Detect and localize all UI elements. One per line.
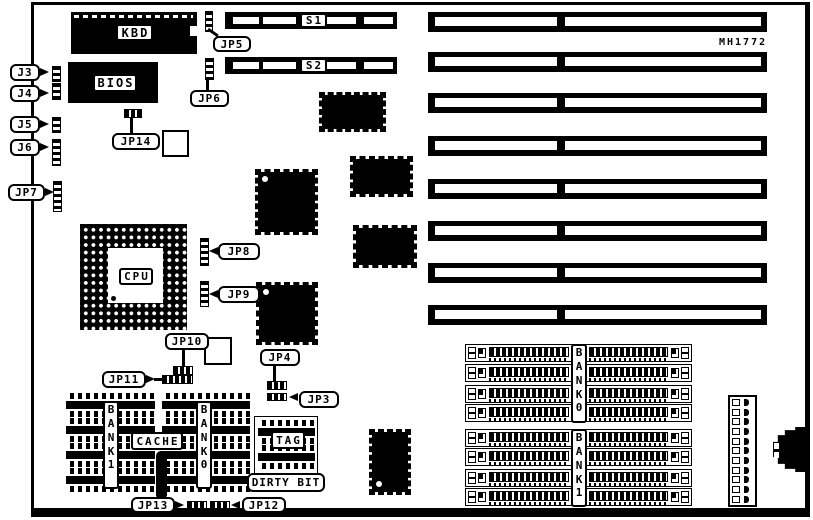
s2-segment (326, 62, 356, 69)
isa-slot (428, 12, 767, 32)
simm-module-chips (589, 407, 668, 417)
simm-latch (468, 388, 476, 400)
callout-jp8: JP8 (218, 243, 260, 260)
isa-slot (428, 93, 767, 113)
power-pin-row (730, 408, 755, 416)
isa-slot-key-16bit (565, 184, 761, 193)
power-pin-socket (732, 486, 740, 493)
callout-jp7: JP7 (8, 184, 45, 201)
j5-connector (52, 117, 61, 133)
callout-jp5: JP5 (213, 36, 251, 52)
callout-jp11: JP11 (102, 371, 146, 388)
qfp-chip (255, 169, 318, 235)
s2-segment (233, 62, 259, 69)
simm-latch (468, 367, 476, 379)
simm-latch (468, 451, 476, 463)
simm-latch (681, 491, 689, 503)
simm-pins (489, 378, 569, 381)
isa-slot-key-16bit (565, 98, 761, 107)
power-pin-row (730, 495, 755, 503)
qfp-chip (256, 282, 318, 345)
simm-latch (468, 407, 476, 419)
isa-slot-key-8bit (435, 17, 557, 26)
pin1-dot (262, 176, 268, 182)
s1-segment (326, 17, 356, 24)
power-pin (744, 409, 749, 416)
simm-module-chips (489, 491, 569, 501)
jp4-jumper (267, 381, 287, 390)
callout-jp4: JP4 (260, 349, 300, 366)
simm-latch (478, 433, 486, 443)
s1-label: S1 (300, 13, 327, 28)
callout-jp3: JP3 (299, 391, 339, 408)
power-pin-socket (732, 457, 740, 464)
isa-slot-key-16bit (565, 57, 761, 66)
callout-pointer (130, 118, 133, 134)
power-pin (744, 399, 749, 406)
simm-latch (478, 473, 486, 483)
power-pin (744, 496, 749, 503)
callout-j4: J4 (10, 85, 40, 102)
power-pin (744, 438, 749, 445)
simm-latch (468, 432, 476, 444)
jp6-header (205, 58, 214, 80)
simm-latch (681, 367, 689, 379)
isa-slot-key-8bit (435, 226, 557, 235)
callout-pointer (182, 350, 185, 366)
isa-slot-key-8bit (435, 141, 557, 150)
s1-segment (263, 17, 296, 24)
pin1-dot (263, 289, 269, 295)
simm-module-chips (489, 347, 569, 357)
simm-latch (681, 388, 689, 400)
power-pin (744, 486, 749, 493)
simm-pins (489, 462, 569, 465)
power-pin-socket (732, 476, 740, 483)
isa-slot-key-16bit (565, 268, 761, 277)
cache-bank1-label: B A N K 1 (103, 401, 119, 489)
simm-latch (681, 407, 689, 419)
power-pin (744, 428, 749, 435)
cache-label: CACHE (131, 432, 183, 450)
callout-pointer (40, 143, 49, 151)
simm-module-chips (489, 451, 569, 461)
power-pin-row (730, 457, 755, 465)
isa-slot-key-8bit (435, 310, 557, 319)
callout-pointer (45, 188, 54, 196)
callout-jp9: JP9 (218, 286, 260, 303)
power-pin-row (730, 486, 755, 494)
isa-slot-key-16bit (565, 226, 761, 235)
simm-module-chips (489, 388, 569, 398)
cpu-pin1-dot (111, 296, 116, 301)
kbd-label: KBD (116, 24, 153, 41)
simm-module-chips (589, 347, 668, 357)
jp12-jumper (210, 501, 230, 509)
simm-latch (681, 472, 689, 484)
simm-module-chips (589, 367, 668, 377)
isa-slot (428, 52, 767, 72)
simm-pins (589, 502, 668, 505)
qfp-chip (369, 429, 411, 495)
simm-pins (489, 418, 569, 421)
isa-slot (428, 179, 767, 199)
simm-latch (681, 451, 689, 463)
simm-module-chips (489, 407, 569, 417)
isa-slot-key-8bit (435, 268, 557, 277)
power-pin-row (730, 476, 755, 484)
power-pin-row (730, 399, 755, 407)
isa-slot-key-16bit (565, 141, 761, 150)
simm-pins (589, 418, 668, 421)
power-pin-row (730, 437, 755, 445)
callout-pointer (289, 393, 298, 401)
simm-latch (671, 473, 679, 483)
simm-latch (671, 452, 679, 462)
jp8-header (200, 238, 209, 266)
qfp-chip (350, 156, 413, 197)
callout-jp13: JP13 (131, 497, 175, 513)
power-pin-row (730, 428, 755, 436)
simm-module-chips (489, 432, 569, 442)
simm-latch (681, 432, 689, 444)
motherboard-diagram: KBD BIOS S1 S2 MH1772 CPU (0, 0, 813, 520)
jp7-header (53, 181, 62, 212)
simm-latch (671, 408, 679, 418)
callout-pointer (209, 247, 218, 255)
simm-pins (589, 378, 668, 381)
simm-pins (489, 443, 569, 446)
power-pin (744, 467, 749, 474)
simm-module-chips (589, 432, 668, 442)
board-marking: MH1772 (719, 37, 767, 48)
capacitor (156, 451, 167, 498)
isa-slot (428, 136, 767, 156)
tag-label: TAG (271, 431, 305, 449)
callout-jp14: JP14 (112, 133, 160, 150)
callout-j6: J6 (10, 139, 40, 156)
dirty-bit-label: DIRTY BIT (247, 473, 325, 492)
simm-latch (468, 347, 476, 359)
callout-j5: J5 (10, 116, 40, 133)
power-pin (744, 447, 749, 454)
simm-latch (671, 368, 679, 378)
callout-pointer (40, 89, 49, 97)
callout-pointer (154, 378, 163, 381)
isa-slot-key-8bit (435, 98, 557, 107)
power-pin (744, 457, 749, 464)
kbd-chip-dash (74, 15, 193, 18)
j3-connector (52, 66, 61, 82)
callout-jp10: JP10 (165, 333, 209, 350)
simm-pins (589, 483, 668, 486)
isa-slot-key-16bit (565, 17, 761, 26)
s2-segment (263, 62, 296, 69)
jp9-header (200, 281, 209, 307)
isa-slot (428, 305, 767, 325)
simm-pins (489, 358, 569, 361)
simm-module-chips (589, 451, 668, 461)
power-pin-socket (732, 409, 740, 416)
simm-pins (489, 483, 569, 486)
simm-pins (589, 443, 668, 446)
isa-slot (428, 221, 767, 241)
simm-latch (681, 347, 689, 359)
power-pin-row (730, 447, 755, 455)
din-notch (774, 443, 779, 449)
power-pin-row (730, 466, 755, 474)
simm-module-chips (489, 367, 569, 377)
power-pin-socket (732, 496, 740, 503)
simm-pins (589, 462, 668, 465)
pin1-dot (376, 481, 382, 487)
simm-latch (671, 492, 679, 502)
power-pin-socket (732, 418, 740, 425)
callout-jp6: JP6 (190, 90, 229, 107)
simm-latch (468, 491, 476, 503)
isa-slot-key-8bit (435, 57, 557, 66)
callout-jp12: JP12 (242, 497, 286, 513)
s1-segment (364, 17, 393, 24)
simm-bank1-label: B A N K 1 (571, 429, 587, 507)
power-pin-socket (732, 467, 740, 474)
s2-segment (364, 62, 393, 69)
power-pin-row (730, 418, 755, 426)
power-pin-socket (732, 438, 740, 445)
din-notch (774, 452, 779, 458)
jp14-jumper (124, 109, 142, 118)
callout-pointer (231, 501, 240, 509)
isa-slot (428, 263, 767, 283)
power-connector (728, 395, 757, 507)
callout-pointer (40, 120, 49, 128)
power-pin-socket (732, 399, 740, 406)
power-pin-socket (732, 428, 740, 435)
j4-connector (52, 83, 61, 100)
simm-pins (489, 399, 569, 402)
simm-latch (478, 408, 486, 418)
qfp-chip (319, 92, 386, 132)
power-pin (744, 476, 749, 483)
simm-bank0-label: B A N K 0 (571, 344, 587, 423)
s1-segment (233, 17, 259, 24)
simm-module-chips (589, 388, 668, 398)
callout-j3: J3 (10, 64, 40, 81)
power-pin (744, 418, 749, 425)
simm-latch (478, 389, 486, 399)
simm-latch (478, 452, 486, 462)
jp3-jumper (267, 393, 287, 401)
j6-connector (52, 139, 61, 166)
callout-pointer (209, 290, 218, 298)
qfp-chip (353, 225, 417, 268)
cache-bank0-label: B A N K 0 (196, 401, 212, 489)
bios-label: BIOS (93, 74, 137, 92)
simm-latch (468, 472, 476, 484)
simm-module-chips (589, 491, 668, 501)
simm-latch (478, 368, 486, 378)
isa-slot-key-8bit (435, 184, 557, 193)
simm-module-chips (589, 472, 668, 482)
simm-pins (489, 502, 569, 505)
kbd-chip-notch (190, 26, 197, 36)
cpu-label: CPU (119, 268, 153, 285)
oscillator-outline (162, 130, 189, 157)
simm-module-chips (489, 472, 569, 482)
jp11-jumper (162, 375, 193, 384)
s2-label: S2 (300, 58, 327, 73)
jp13-jumper (187, 501, 207, 509)
simm-pins (589, 399, 668, 402)
jp10-jumper (173, 366, 193, 375)
callout-pointer (40, 68, 49, 76)
simm-latch (478, 492, 486, 502)
simm-latch (671, 348, 679, 358)
isa-slot-key-16bit (565, 310, 761, 319)
simm-latch (478, 348, 486, 358)
callout-pointer (273, 366, 276, 381)
simm-latch (671, 433, 679, 443)
simm-latch (671, 389, 679, 399)
simm-pins (589, 358, 668, 361)
callout-pointer (175, 501, 184, 509)
power-pin-socket (732, 447, 740, 454)
